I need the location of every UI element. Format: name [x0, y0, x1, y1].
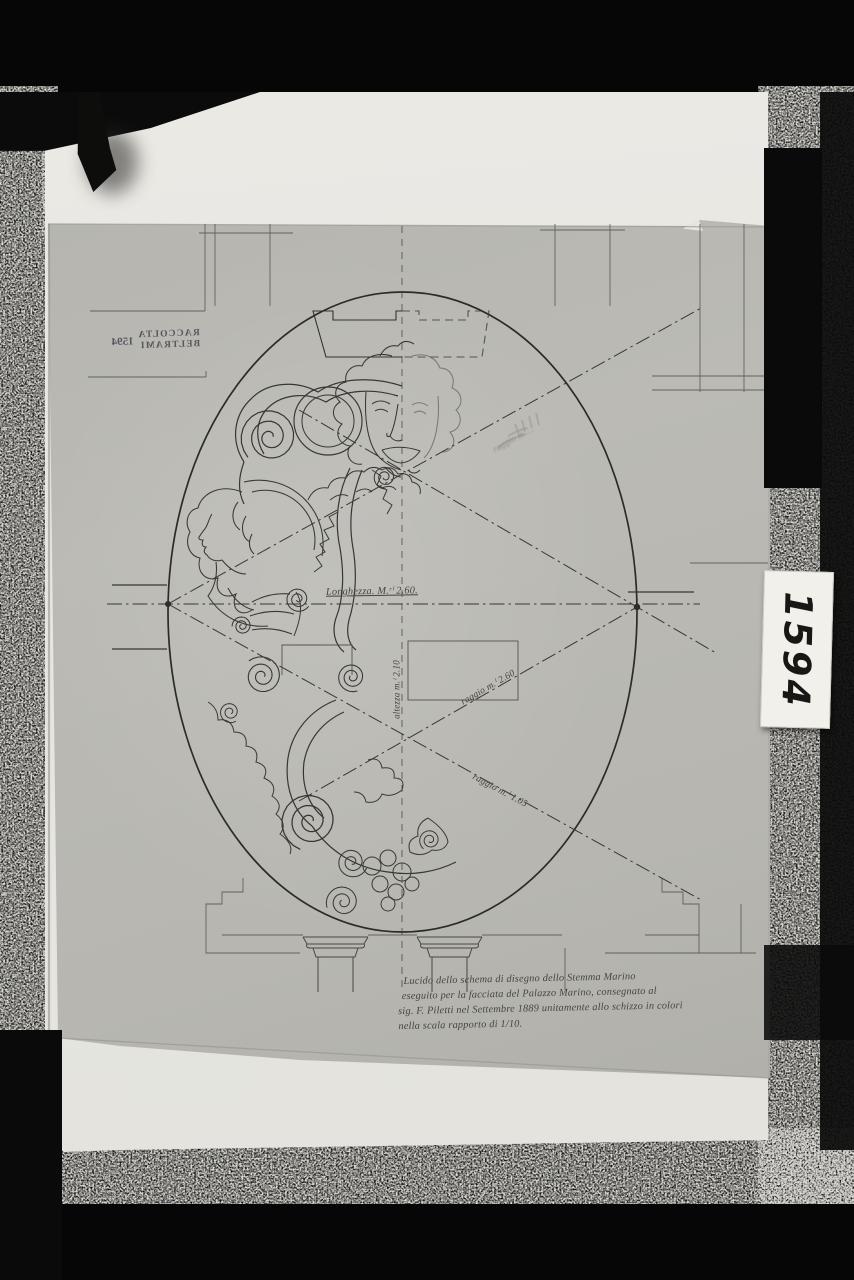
- catalog-number: 1594: [774, 586, 821, 713]
- right-mount-bar: [764, 148, 822, 488]
- left-mount-bar: [0, 1030, 62, 1280]
- right-mount-tab: [764, 945, 854, 1040]
- archive-photograph: Longhezza. M.ʳⁱ 2.60. altezza m.ⁱ 2.10 r…: [0, 0, 854, 1280]
- catalog-number-tab: 1594: [760, 570, 834, 729]
